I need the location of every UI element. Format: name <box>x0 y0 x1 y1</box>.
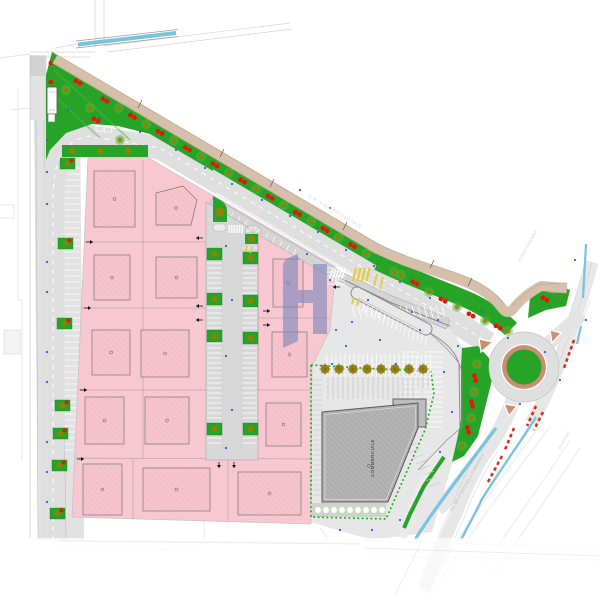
svg-text:COMMERCIALE: COMMERCIALE <box>370 439 375 477</box>
